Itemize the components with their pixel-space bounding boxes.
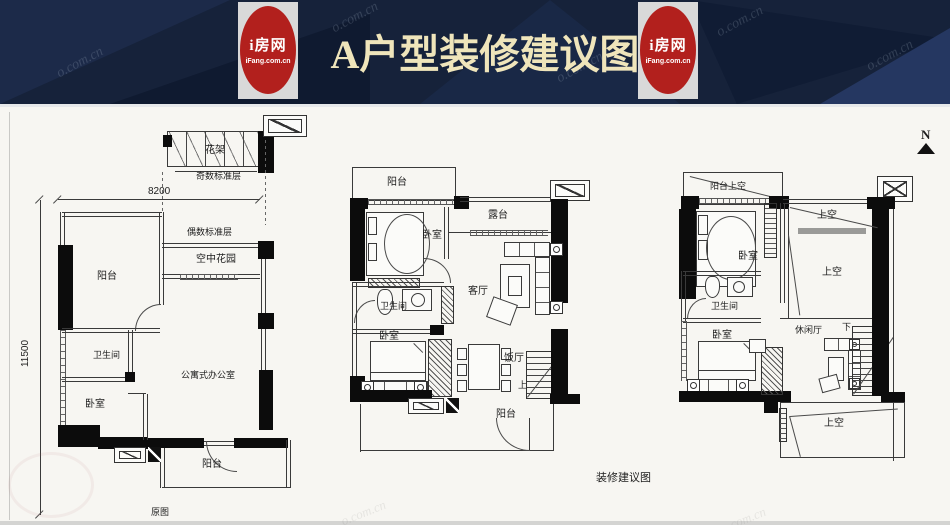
wall [553, 404, 554, 451]
wall [286, 440, 291, 488]
room-label-balcony: 阳台 [387, 178, 407, 188]
void-diagonal [788, 235, 800, 315]
wall [783, 199, 877, 204]
cabinet [749, 339, 766, 353]
ac-symbol [119, 451, 141, 459]
page-title: A户型装修建议图 [300, 22, 670, 80]
door-arc [354, 300, 375, 323]
wall [261, 259, 266, 315]
wall [259, 370, 273, 430]
room-label-leisure: 休闲厅 [795, 326, 822, 335]
logo-domain: iFang.com.cn [238, 58, 298, 65]
sofa-side [535, 257, 550, 315]
toilet [705, 276, 720, 298]
dimension-line-horizontal [58, 199, 260, 200]
room-label-bedroom: 卧室 [738, 252, 758, 262]
pillow [698, 215, 708, 235]
room-label-void: 上空 [817, 211, 837, 221]
stool [550, 301, 563, 314]
wall [162, 487, 290, 488]
wardrobe [761, 347, 783, 395]
wall [872, 330, 889, 396]
wall [163, 135, 172, 147]
wall [550, 394, 580, 404]
wall [681, 271, 686, 321]
wall [352, 332, 357, 377]
odd-floor-label: 奇数标准层 [196, 172, 241, 181]
chair [501, 380, 511, 392]
ac-symbol [413, 402, 439, 410]
room-label-bedroom: 卧室 [85, 400, 105, 410]
wall [60, 212, 65, 245]
logo-domain: iFang.com.cn [638, 58, 698, 65]
door-arc [135, 304, 161, 331]
ladder-marks [779, 408, 787, 442]
room-label-balcony: 阳台 [496, 410, 516, 420]
wall [258, 241, 274, 259]
wall [444, 207, 449, 259]
wall [234, 438, 288, 448]
window [368, 199, 456, 205]
wall [58, 245, 73, 330]
room-label-bedroom: 卧室 [379, 332, 399, 342]
wall [162, 243, 260, 248]
dining-table [468, 344, 500, 390]
bed-line [698, 370, 756, 371]
room-label-bedroom: 卧室 [422, 231, 442, 241]
compass-arrow-icon [917, 143, 935, 154]
wall [258, 313, 274, 329]
even-floor-label: 偶数标准层 [187, 228, 232, 237]
dim-height-label: 11500 [20, 340, 31, 367]
stool [550, 243, 563, 256]
wall-wedge [148, 447, 161, 462]
wall [62, 328, 160, 333]
ac-unit [114, 447, 146, 463]
wall [350, 198, 368, 209]
wall [551, 329, 568, 403]
room-label-living: 客厅 [468, 287, 488, 297]
ac-unit [263, 115, 307, 137]
room-label-void: 上空 [824, 419, 844, 429]
room-label-balcony-void: 阳台上空 [710, 182, 746, 191]
wall [352, 282, 357, 332]
header-banner: o.com.cn o.com.cn o.com.cn o.com.cn o.co… [0, 0, 950, 104]
bed-line [370, 372, 426, 373]
room-label-void: 上空 [822, 268, 842, 278]
window [180, 274, 238, 280]
door-arc [496, 418, 530, 451]
header-edge [0, 104, 950, 107]
sofa-back [504, 242, 550, 257]
logo-name: i房网 [238, 34, 298, 55]
ifang-logo-right: i房网 iFang.com.cn [638, 2, 698, 99]
ac-symbol [268, 119, 302, 133]
door-arc [424, 258, 451, 283]
wall [352, 282, 444, 287]
sink-basin [733, 281, 745, 293]
wall [872, 198, 889, 330]
wall-wedge [446, 398, 459, 413]
stairs-up-label: 上 [518, 381, 527, 390]
door-arc [687, 298, 706, 319]
wall [58, 425, 100, 447]
ac-unit [408, 398, 444, 414]
caption-original: 原图 [151, 508, 169, 517]
wall [867, 197, 895, 209]
void-band [798, 228, 866, 234]
wall [780, 203, 785, 303]
ac-symbol [883, 181, 907, 197]
stairs-down-label: 下 [842, 323, 851, 332]
armchair [818, 374, 840, 393]
wall [261, 329, 266, 372]
wardrobe [428, 339, 452, 397]
ac-symbol [555, 184, 585, 197]
sliding-door [470, 230, 548, 236]
room-label-terrace: 露台 [488, 211, 508, 221]
chair [501, 364, 511, 376]
wall [350, 209, 365, 281]
wall [125, 372, 135, 382]
room-label-office: 公寓式办公室 [181, 371, 235, 380]
logo-name: i房网 [638, 34, 698, 55]
wall [683, 318, 761, 323]
room-label-balcony: 阳台 [97, 272, 117, 282]
scanned-floorplan-page: o.com.cn o.com.cn o.com.cn o.com.cn o.co… [0, 0, 950, 525]
scan-edge [9, 112, 10, 520]
wall [881, 392, 905, 402]
flower-rack-label: 花架 [205, 146, 225, 156]
projection-dash [265, 140, 266, 225]
sink-basin [411, 293, 425, 307]
room-label-dining: 饭厅 [504, 354, 524, 364]
wall [258, 131, 274, 173]
dim-width-label: 8200 [148, 186, 170, 197]
room-label-bedroom: 卧室 [712, 331, 732, 341]
cabinet [441, 286, 454, 324]
scan-smudge [8, 452, 94, 518]
ac-unit [550, 180, 590, 201]
room-label-bathroom: 卫生间 [380, 302, 407, 311]
pillow [368, 243, 377, 261]
shutter-panel [764, 203, 777, 258]
room-label-bathroom: 卫生间 [93, 351, 120, 360]
scan-strip [0, 521, 950, 525]
wall [780, 318, 876, 319]
window [699, 198, 769, 204]
wall [683, 271, 761, 276]
room-label-bathroom: 卫生间 [711, 302, 738, 311]
wall [62, 212, 162, 217]
wall [360, 404, 361, 452]
wall [143, 394, 148, 440]
ifang-logo-left: i房网 iFang.com.cn [238, 2, 298, 99]
wall [764, 401, 778, 413]
wall [681, 196, 699, 209]
projection-dash [162, 172, 163, 213]
wall [430, 325, 444, 335]
chair [457, 364, 467, 376]
compass-label: N [921, 127, 930, 143]
door-leaf [529, 418, 530, 450]
table-inset [508, 276, 522, 296]
room-label-balcony: 阳台 [202, 460, 222, 470]
wall [460, 197, 554, 202]
window [681, 321, 687, 381]
wall [788, 207, 789, 318]
sky-garden-label: 空中花园 [196, 255, 236, 265]
pillow [368, 217, 377, 235]
chair [457, 348, 467, 360]
wall [62, 377, 128, 382]
caption-suggestion: 装修建议图 [596, 473, 651, 484]
wall [159, 212, 164, 305]
chair [457, 380, 467, 392]
